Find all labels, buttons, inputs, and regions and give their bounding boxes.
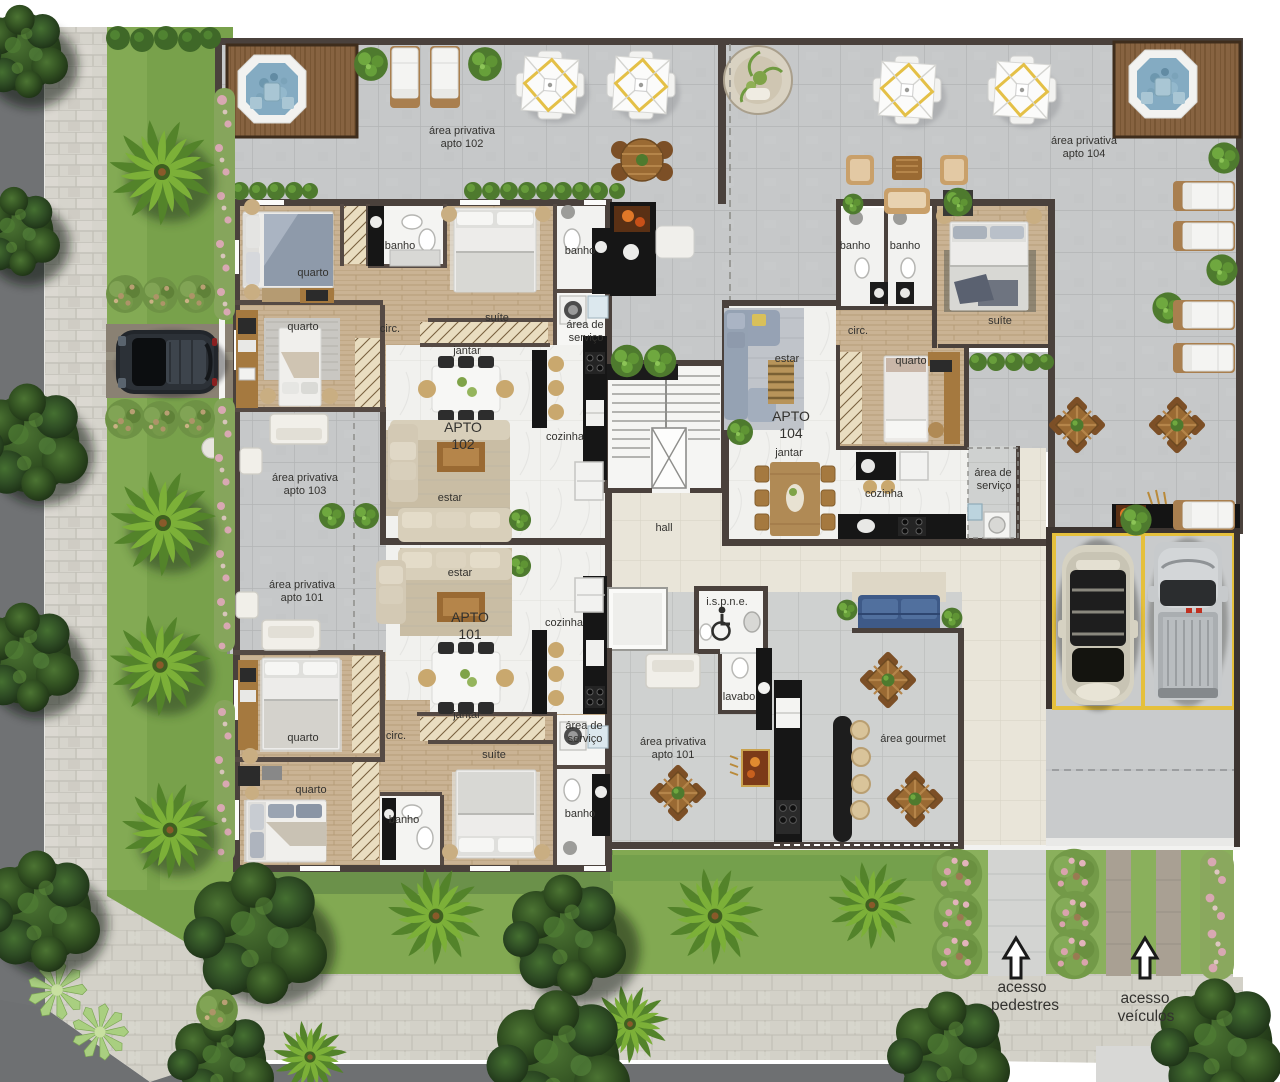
svg-text:jantar: jantar — [452, 345, 481, 357]
svg-text:apto 102: apto 102 — [441, 138, 484, 150]
svg-text:apto 103: apto 103 — [284, 485, 327, 497]
svg-text:serviço: serviço — [569, 332, 604, 344]
svg-text:circ.: circ. — [380, 323, 400, 335]
svg-text:área privativa: área privativa — [269, 579, 336, 591]
svg-text:APTO: APTO — [444, 419, 482, 435]
svg-text:cozinha: cozinha — [865, 488, 904, 500]
svg-text:área privativa: área privativa — [272, 472, 339, 484]
svg-text:circ.: circ. — [386, 730, 406, 742]
svg-text:acesso: acesso — [997, 979, 1046, 996]
svg-text:pedestres: pedestres — [991, 997, 1059, 1014]
svg-text:banho: banho — [840, 240, 871, 252]
svg-text:serviço: serviço — [977, 480, 1012, 492]
svg-text:estar: estar — [448, 567, 473, 579]
svg-text:banho: banho — [565, 808, 596, 820]
svg-text:APTO: APTO — [772, 408, 810, 424]
svg-text:jantar: jantar — [774, 447, 803, 459]
svg-text:área privativa: área privativa — [640, 736, 707, 748]
svg-text:área de: área de — [974, 467, 1011, 479]
svg-text:veículos: veículos — [1118, 1008, 1175, 1025]
svg-text:acesso: acesso — [1120, 990, 1169, 1007]
svg-text:área gourmet: área gourmet — [880, 733, 945, 745]
svg-text:quarto: quarto — [287, 732, 318, 744]
svg-text:banho: banho — [890, 240, 921, 252]
svg-text:circ.: circ. — [848, 325, 868, 337]
svg-text:apto 101: apto 101 — [281, 592, 324, 604]
svg-text:área de: área de — [565, 720, 602, 732]
svg-text:cozinha: cozinha — [545, 617, 584, 629]
svg-text:hall: hall — [655, 522, 672, 534]
svg-text:quarto: quarto — [295, 784, 326, 796]
svg-text:i.s.p.n.e.: i.s.p.n.e. — [706, 596, 748, 608]
svg-text:104: 104 — [779, 425, 803, 441]
svg-text:102: 102 — [451, 436, 475, 452]
svg-text:jantar: jantar — [452, 709, 481, 721]
svg-text:serviço: serviço — [568, 733, 603, 745]
svg-text:banho: banho — [385, 240, 416, 252]
svg-text:101: 101 — [458, 626, 482, 642]
svg-text:APTO: APTO — [451, 609, 489, 625]
svg-text:suíte: suíte — [988, 315, 1012, 327]
svg-text:quarto: quarto — [297, 267, 328, 279]
svg-text:suíte: suíte — [482, 749, 506, 761]
svg-text:lavabo: lavabo — [723, 691, 755, 703]
svg-text:área de: área de — [566, 319, 603, 331]
svg-text:suíte: suíte — [485, 312, 509, 324]
svg-text:banho: banho — [565, 245, 596, 257]
svg-text:quarto: quarto — [287, 321, 318, 333]
svg-text:quarto: quarto — [895, 355, 926, 367]
svg-text:cozinha: cozinha — [546, 431, 585, 443]
svg-text:estar: estar — [438, 492, 463, 504]
svg-text:apto 101: apto 101 — [652, 749, 695, 761]
svg-text:apto 104: apto 104 — [1063, 148, 1106, 160]
svg-text:banho: banho — [389, 814, 420, 826]
svg-text:área privativa: área privativa — [1051, 135, 1118, 147]
svg-text:área privativa: área privativa — [429, 125, 496, 137]
svg-text:estar: estar — [775, 353, 800, 365]
